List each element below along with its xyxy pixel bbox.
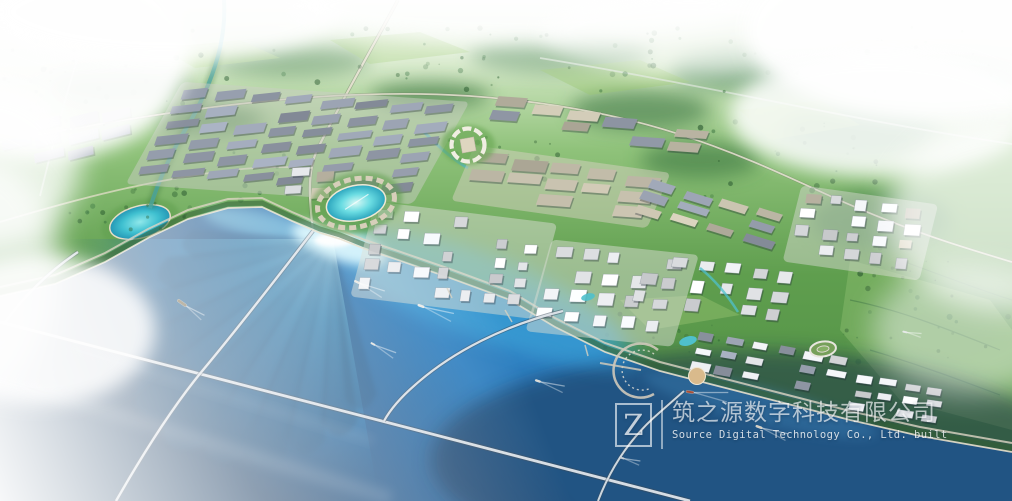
aerial-masterplan-rendering: Z 筑之源数字科技有限公司 Source Digital Technology … [0,0,1012,501]
rendering-canvas [0,0,1012,501]
civic-ring-complex [441,125,495,165]
